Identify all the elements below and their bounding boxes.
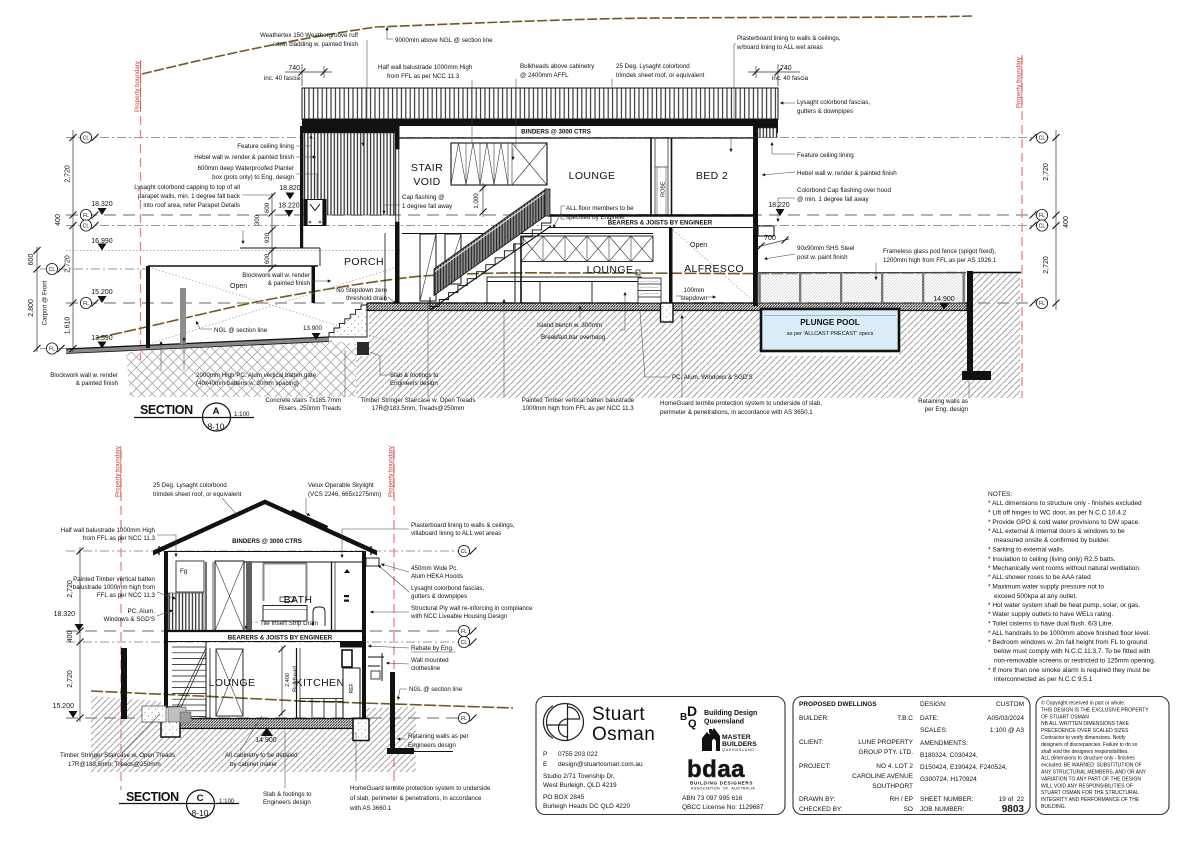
- svg-text:West Burleigh, QLD 4219: West Burleigh, QLD 4219: [543, 782, 617, 789]
- svg-text:STUART OSMAN FOR THE STRUCTURA: STUART OSMAN FOR THE STRUCTURAL: [1041, 790, 1139, 796]
- svg-text:FL: FL: [1039, 301, 1045, 307]
- svg-text:Timber Stringer Staircase w. O: Timber Stringer Staircase w. Open Treads: [60, 752, 175, 759]
- svg-text:AMENDMENTS:: AMENDMENTS:: [920, 740, 968, 747]
- svg-text:Rebate by Eng.: Rebate by Eng.: [411, 645, 454, 652]
- svg-text:Engineers design: Engineers design: [408, 742, 456, 749]
- svg-text:FFL as per NCC 11.3: FFL as per NCC 11.3: [97, 592, 156, 599]
- svg-text:300: 300: [254, 214, 261, 225]
- svg-text:1:100: 1:100: [234, 411, 250, 418]
- svg-text:Lysaght colorbond fascias,: Lysaght colorbond fascias,: [411, 585, 484, 592]
- svg-text:CL: CL: [83, 224, 90, 230]
- svg-text:Plasterboard lining to walls &: Plasterboard lining to walls & ceilings,: [411, 522, 515, 529]
- svg-text:400: 400: [67, 631, 74, 643]
- svg-text:PO BOX 2845: PO BOX 2845: [543, 794, 585, 801]
- svg-text:& painted finish: & painted finish: [76, 380, 119, 387]
- svg-text:2,720: 2,720: [65, 255, 72, 273]
- svg-text:PLUNGE POOL: PLUNGE POOL: [800, 318, 860, 327]
- svg-text:LOUNGE: LOUNGE: [209, 677, 256, 689]
- svg-text:17R@183.5mm, Treads@250mm: 17R@183.5mm, Treads@250mm: [68, 761, 161, 768]
- svg-text:400: 400: [55, 214, 62, 226]
- svg-text:by cabinet maker: by cabinet maker: [230, 761, 277, 768]
- svg-text:0755 203 022: 0755 203 022: [558, 751, 598, 758]
- svg-text:Hebel wall w. render & painted: Hebel wall w. render & painted finish: [797, 170, 897, 177]
- svg-text:9000mm above NGL @ section lin: 9000mm above NGL @ section line: [395, 37, 493, 44]
- svg-text:designers of discrepancies. Fa: designers of discrepancies. Failure to d…: [1041, 742, 1138, 748]
- svg-text:SECTION: SECTION: [140, 403, 193, 417]
- svg-text:BUILDER:: BUILDER:: [799, 715, 829, 722]
- svg-text:sawn cladding w. painted finis: sawn cladding w. painted finish: [273, 41, 359, 48]
- svg-text:1000mm high from FFL as per NC: 1000mm high from FFL as per NCC 11.3: [522, 405, 634, 412]
- svg-text:FL: FL: [83, 213, 89, 219]
- svg-text:FL: FL: [49, 347, 55, 353]
- svg-text:Alum HEKA Hoods: Alum HEKA Hoods: [411, 573, 463, 580]
- svg-text:BUILDERS: BUILDERS: [722, 741, 757, 748]
- svg-text:specified by Engineer: specified by Engineer: [566, 214, 625, 221]
- svg-text:HomeGuard termite protection s: HomeGuard termite protection system to u…: [350, 785, 491, 792]
- svg-text:QBCC License No: 1129687: QBCC License No: 1129687: [682, 804, 764, 811]
- svg-text:excluded. BE WARNED: SUBSTITUT: excluded. BE WARNED: SUBSTITUTION OF: [1041, 763, 1142, 769]
- svg-text:Plasterboard lining to walls &: Plasterboard lining to walls & ceilings,: [737, 35, 841, 42]
- svg-text:25 Deg. Lysaght colorbond: 25 Deg. Lysaght colorbond: [616, 63, 690, 70]
- svg-text:FL: FL: [461, 716, 467, 722]
- svg-text:P: P: [543, 751, 547, 758]
- svg-text:1:100 @ A3: 1:100 @ A3: [990, 727, 1024, 734]
- svg-text:Property boundary: Property boundary: [388, 445, 395, 497]
- svg-text:600: 600: [264, 202, 271, 213]
- svg-text:LOUNGE: LOUNGE: [587, 264, 634, 276]
- svg-text:Blockwork wall w. render: Blockwork wall w. render: [242, 272, 310, 279]
- svg-text:ANY STRUCTURAL MEMBERS, AND OR: ANY STRUCTURAL MEMBERS, AND OR ANY: [1041, 770, 1147, 776]
- svg-text:from FFL as per NCC 11.3: from FFL as per NCC 11.3: [83, 535, 156, 542]
- svg-text:15.200: 15.200: [53, 703, 75, 710]
- svg-text:Hebel wall w. render & painted: Hebel wall w. render & painted finish: [194, 154, 294, 161]
- svg-text:Open: Open: [230, 283, 247, 290]
- svg-text:box (pots only) to Eng. design: box (pots only) to Eng. design: [212, 174, 294, 181]
- svg-text:design@stuartosman.com.au: design@stuartosman.com.au: [558, 761, 643, 768]
- svg-text:CL: CL: [461, 640, 468, 646]
- svg-text:PORCH: PORCH: [344, 256, 384, 268]
- svg-text:Slab & footings to: Slab & footings to: [390, 372, 439, 379]
- svg-text:Q: Q: [688, 718, 697, 730]
- svg-text:REF.: REF.: [349, 683, 355, 694]
- svg-text:Contractor to verify dimension: Contractor to verify dimensions. Notify: [1041, 735, 1126, 741]
- svg-text:NGL @ section line: NGL @ section line: [214, 327, 268, 334]
- svg-text:Feature ceiling lining: Feature ceiling lining: [797, 152, 854, 159]
- svg-text:Tile Insert Strip Drain: Tile Insert Strip Drain: [260, 620, 318, 627]
- svg-text:2,720: 2,720: [1043, 163, 1050, 181]
- svg-text:PRECEDENCE OVER SCALED SIZES: PRECEDENCE OVER SCALED SIZES: [1041, 728, 1129, 734]
- svg-text:NB ALL WRITTEN DIMENSIONS TAKE: NB ALL WRITTEN DIMENSIONS TAKE: [1041, 721, 1130, 727]
- svg-text:INTEGRITY AND PERFORMANCE OF T: INTEGRITY AND PERFORMANCE OF THE: [1041, 797, 1140, 803]
- svg-text:Half wall balustrade 1000mm Hi: Half wall balustrade 1000mm High: [378, 64, 473, 71]
- svg-text:ALFRESCO: ALFRESCO: [684, 263, 744, 275]
- svg-text:BED 2: BED 2: [696, 170, 728, 182]
- svg-text:gutters & downpipes: gutters & downpipes: [797, 108, 853, 115]
- svg-text:13.900: 13.900: [303, 325, 322, 332]
- svg-text:2000mm High PC. Alum vertical: 2000mm High PC. Alum vertical batten gat…: [196, 372, 317, 379]
- svg-text:Carport @ Front: Carport @ Front: [42, 280, 49, 325]
- svg-text:D150424, E190424, F240524,: D150424, E190424, F240524,: [920, 764, 1007, 771]
- svg-text:with NCC Liveable Housing Desi: with NCC Liveable Housing Design: [410, 613, 508, 620]
- svg-text:CL: CL: [49, 267, 56, 273]
- svg-text:Burleigh Heads DC QLD 4220: Burleigh Heads DC QLD 4220: [543, 803, 630, 810]
- svg-text:Wall mounted: Wall mounted: [411, 657, 449, 664]
- svg-text:CHECKED BY:: CHECKED BY:: [799, 806, 843, 813]
- svg-text:CL: CL: [1039, 224, 1046, 230]
- svg-text:HomeGuard termite protection s: HomeGuard termite protection system to u…: [660, 400, 822, 407]
- svg-text:* Maximum water supply pressur: * Maximum water supply pressure not to: [988, 584, 1104, 591]
- svg-text:WILL VOID ANY RESPONSIBILITIES: WILL VOID ANY RESPONSIBILITIES OF: [1041, 783, 1133, 789]
- svg-text:CL: CL: [1039, 136, 1046, 142]
- svg-text:CUSTOM: CUSTOM: [996, 701, 1024, 708]
- svg-text:Open: Open: [690, 242, 707, 249]
- svg-text:BINDERS @ 3000 CTRS: BINDERS @ 3000 CTRS: [232, 538, 302, 545]
- svg-text:with AS 3660.1: with AS 3660.1: [349, 805, 392, 812]
- svg-text:25 Deg. Lysaght colorbond: 25 Deg. Lysaght colorbond: [153, 482, 227, 489]
- svg-text:18.320: 18.320: [91, 201, 113, 208]
- svg-text:CL: CL: [461, 549, 468, 555]
- svg-text:exceed 500kpa at any outlet.: exceed 500kpa at any outlet.: [994, 593, 1077, 600]
- svg-text:Half wall balustrade 1000mm Hi: Half wall balustrade 1000mm High: [61, 527, 156, 534]
- svg-text:740: 740: [288, 65, 300, 72]
- svg-text:600mm deep Waterproofed Plante: 600mm deep Waterproofed Planter: [198, 165, 294, 172]
- svg-text:BUILDING.: BUILDING.: [1041, 804, 1066, 810]
- svg-text:non-removable screens or restr: non-removable screens or restricted to 1…: [994, 658, 1156, 665]
- svg-text:ABN 73 097 995 616: ABN 73 097 995 616: [682, 795, 743, 802]
- svg-text:2,800: 2,800: [28, 299, 35, 317]
- svg-text:as per 'ALLCAST PRECAST' specs: as per 'ALLCAST PRECAST' specs: [787, 331, 874, 337]
- svg-text:Breakfast bar overhang: Breakfast bar overhang: [541, 334, 606, 341]
- svg-text:* Water supply outlets to have: * Water supply outlets to have WELs rati…: [988, 611, 1113, 618]
- svg-text:BINDERS @ 3000 CTRS: BINDERS @ 3000 CTRS: [521, 129, 591, 136]
- svg-text:* ALL dimensions to structure: * ALL dimensions to structure only - fin…: [988, 500, 1142, 507]
- svg-text:GROUP PTY. LTD.: GROUP PTY. LTD.: [858, 749, 913, 756]
- svg-text:G300724, H170924: G300724, H170924: [920, 776, 977, 783]
- svg-text:* ALL shower roses to be AAA r: * ALL shower roses to be AAA rated: [988, 574, 1091, 581]
- svg-text:18.320: 18.320: [54, 611, 76, 618]
- svg-text:Slab & footings to: Slab & footings to: [263, 791, 312, 798]
- svg-text:balustrade 1000mm high from: balustrade 1000mm high from: [73, 584, 155, 591]
- svg-text:E: E: [543, 761, 548, 768]
- svg-text:* Sarking to external walls.: * Sarking to external walls.: [988, 547, 1065, 554]
- svg-text:A: A: [213, 406, 220, 417]
- svg-text:* ALL external & internal door: * ALL external & internal doors & window…: [988, 528, 1125, 535]
- svg-text:OF STUART OSMAN: OF STUART OSMAN: [1041, 714, 1089, 720]
- svg-text:SOUTHPORT: SOUTHPORT: [872, 783, 913, 790]
- svg-text:SHEET NUMBER:: SHEET NUMBER:: [920, 796, 974, 803]
- svg-text:14.900: 14.900: [933, 296, 955, 303]
- svg-text:ALL dimensions to structure on: ALL dimensions to structure only - finis…: [1041, 756, 1135, 762]
- svg-text:No Stepdown zero: No Stepdown zero: [336, 287, 387, 294]
- svg-text:CLIENT:: CLIENT:: [799, 739, 823, 746]
- svg-text:FL: FL: [83, 301, 89, 307]
- svg-text:post w. paint finish: post w. paint finish: [797, 254, 848, 261]
- svg-text:9803: 9803: [1002, 804, 1025, 815]
- svg-text:Painted Timber vertical batten: Painted Timber vertical batten: [73, 576, 155, 583]
- svg-text:* ALL handrails to be 1000mm a: * ALL handrails to be 1000mm above finis…: [988, 630, 1150, 637]
- svg-text:into roof area, refer Parapet: into roof area, refer Parapet Details: [143, 202, 240, 209]
- svg-text:* Lift off hinges to WC door,: * Lift off hinges to WC door, as per N.C…: [988, 510, 1127, 517]
- svg-text:below must comply with N.C.C 1: below must comply with N.C.C 11.3.7. To …: [994, 648, 1151, 655]
- svg-text:of slab, perimeter & penetrati: of slab, perimeter & penetrations, in ac…: [350, 795, 482, 802]
- svg-text:per Eng. design: per Eng. design: [925, 406, 969, 413]
- svg-text:w/board lining to ALL wet area: w/board lining to ALL wet areas: [736, 44, 823, 51]
- svg-text:T.B.C: T.B.C: [897, 715, 913, 722]
- svg-text:18.220: 18.220: [278, 203, 300, 210]
- svg-text:villaboard lining to ALL wet a: villaboard lining to ALL wet areas: [411, 530, 501, 537]
- svg-text:PC. Alum. Windows & SGD'S: PC. Alum. Windows & SGD'S: [672, 374, 753, 381]
- svg-text:450mm Wide Pc.: 450mm Wide Pc.: [411, 565, 458, 572]
- svg-text:PROPOSED DWELLINGS: PROPOSED DWELLINGS: [799, 701, 877, 708]
- svg-text:Colorbond Cap flashing over ho: Colorbond Cap flashing over hood: [797, 187, 891, 194]
- svg-text:Fg: Fg: [180, 568, 188, 575]
- svg-text:All cabinetry to be detailed: All cabinetry to be detailed: [225, 752, 298, 759]
- svg-text:18.820: 18.820: [279, 185, 301, 192]
- svg-text:Engineers design: Engineers design: [263, 799, 311, 806]
- svg-text:clothesline: clothesline: [411, 665, 441, 672]
- svg-text:@ 2400mm AFFL: @ 2400mm AFFL: [520, 72, 569, 79]
- svg-text:trimdek sheet roof, or equival: trimdek sheet roof, or equivalent: [153, 491, 242, 498]
- svg-text:ROBE: ROBE: [661, 181, 667, 197]
- svg-text:from FFL as per NCC 11.3: from FFL as per NCC 11.3: [387, 73, 460, 80]
- svg-text:Osman: Osman: [592, 724, 655, 745]
- svg-text:2,720: 2,720: [67, 670, 74, 688]
- svg-text:CL: CL: [83, 136, 90, 142]
- svg-text:DRAWN BY:: DRAWN BY:: [799, 796, 835, 803]
- svg-text:1 degree fall away: 1 degree fall away: [402, 203, 453, 210]
- svg-text:inc. 40 fascia: inc. 40 fascia: [772, 75, 809, 82]
- svg-text:NOTES:: NOTES:: [988, 491, 1012, 498]
- svg-text:NO 4. LOT 2: NO 4. LOT 2: [876, 763, 913, 770]
- svg-text:Stuart: Stuart: [592, 704, 645, 725]
- svg-text:Concrete stairs 7x185.7mm: Concrete stairs 7x185.7mm: [265, 397, 341, 404]
- svg-text:© Copyright reserved in part o: © Copyright reserved in part or whole.: [1041, 700, 1125, 707]
- svg-text:14.900: 14.900: [255, 737, 277, 744]
- svg-text:Painted Timber vertical batten: Painted Timber vertical batten balustrad…: [522, 397, 635, 404]
- svg-text:Lysaght colorbond fascias,: Lysaght colorbond fascias,: [797, 99, 870, 106]
- svg-text:@ min. 1 degree fall away: @ min. 1 degree fall away: [797, 196, 870, 203]
- svg-text:ASSOCIATION OF AUSTRALIA: ASSOCIATION OF AUSTRALIA: [691, 787, 755, 791]
- svg-text:THIS DESIGN IS THE EXCLUSIVE P: THIS DESIGN IS THE EXCLUSIVE PROPERTY: [1041, 707, 1149, 713]
- svg-text:(40x40mm battens w. 30mm spaci: (40x40mm battens w. 30mm spacing): [196, 380, 299, 387]
- svg-text:1,000: 1,000: [473, 193, 480, 209]
- svg-text:Windows & SGD'S: Windows & SGD'S: [104, 616, 155, 623]
- svg-text:* Provide GPO & cold water pro: * Provide GPO & cold water provisions to…: [988, 519, 1140, 526]
- svg-text:SECTION: SECTION: [126, 790, 179, 804]
- svg-text:inc. 40 fascia: inc. 40 fascia: [264, 75, 301, 82]
- svg-text:600: 600: [264, 253, 271, 264]
- svg-text:Weathertex 150 Weathergroove r: Weathertex 150 Weathergroove ruff: [260, 32, 358, 39]
- svg-text:D: D: [687, 703, 697, 719]
- svg-text:13.590: 13.590: [91, 335, 113, 342]
- svg-text:Property boundary: Property boundary: [134, 60, 141, 112]
- svg-text:FL: FL: [1039, 213, 1045, 219]
- svg-text:* Mechanically vent rooms with: * Mechanically vent rooms without natura…: [988, 565, 1141, 572]
- svg-text:BATH: BATH: [284, 594, 313, 606]
- svg-text:Engineers design: Engineers design: [390, 380, 438, 387]
- svg-text:measured onsite & confirmed by: measured onsite & confirmed by builder.: [994, 537, 1110, 544]
- svg-text:Risers, 250mm Treads: Risers, 250mm Treads: [279, 405, 341, 412]
- svg-text:2,720: 2,720: [65, 165, 72, 183]
- svg-text:Queensland: Queensland: [704, 719, 744, 726]
- svg-text:1:100: 1:100: [219, 798, 235, 805]
- svg-text:BEARERS & JOISTS BY ENGINEER: BEARERS & JOISTS BY ENGINEER: [228, 635, 333, 642]
- svg-text:Cap flashing @: Cap flashing @: [402, 194, 444, 201]
- svg-text:740: 740: [780, 65, 792, 72]
- svg-text:trimdek sheet roof, or equival: trimdek sheet roof, or equivalent: [616, 72, 705, 79]
- svg-text:CAROLINE AVENUE: CAROLINE AVENUE: [852, 773, 914, 780]
- svg-text:400: 400: [1063, 216, 1070, 228]
- svg-text:bdaa: bdaa: [687, 756, 745, 783]
- svg-text:PROJECT:: PROJECT:: [799, 763, 831, 770]
- svg-text:Retaining walls as per: Retaining walls as per: [408, 733, 469, 740]
- svg-text:8-10: 8-10: [191, 808, 208, 818]
- svg-text:Blockwork wall w. render: Blockwork wall w. render: [50, 372, 118, 379]
- svg-text:SO: SO: [904, 806, 913, 813]
- svg-text:2,720: 2,720: [1043, 256, 1050, 274]
- svg-text:interconnected as per N.C.C 9.: interconnected as per N.C.C 9.5.1: [994, 676, 1093, 683]
- svg-text:Timber Stringer Staircase w. O: Timber Stringer Staircase w. Open Treads: [361, 397, 476, 404]
- svg-text:100mm: 100mm: [684, 287, 705, 294]
- svg-text:Lysaght colorbond capping to t: Lysaght colorbond capping to top of all: [134, 184, 240, 191]
- svg-text:1,610: 1,610: [65, 317, 72, 335]
- svg-text:Studio 2/71 Township Dr,: Studio 2/71 Township Dr,: [543, 773, 615, 780]
- svg-text:* Bedroom windows w. 2m fall h: * Bedroom windows w. 2m fall height from…: [988, 639, 1147, 646]
- svg-text:STAIR: STAIR: [411, 162, 443, 174]
- svg-text:DESIGN:: DESIGN:: [920, 701, 947, 708]
- svg-text:17R@183.5mm, Treads@250mm: 17R@183.5mm, Treads@250mm: [372, 405, 465, 412]
- svg-text:A05/03/2024: A05/03/2024: [987, 715, 1024, 722]
- svg-text:parapet walls, min. 1 degree f: parapet walls, min. 1 degree fall back: [138, 193, 241, 200]
- svg-text:Frameless glass pod fence (spi: Frameless glass pod fence (spigot fixed)…: [883, 248, 996, 255]
- svg-text:BUILDING DESIGNERS: BUILDING DESIGNERS: [690, 781, 753, 786]
- svg-text:Retaining walls as: Retaining walls as: [918, 398, 968, 405]
- svg-text:MASTER: MASTER: [722, 734, 751, 741]
- svg-text:2,400: 2,400: [285, 673, 291, 687]
- svg-text:Velux Operable Skylight: Velux Operable Skylight: [308, 482, 374, 489]
- svg-text:90x90mm SHS Steel: 90x90mm SHS Steel: [797, 245, 854, 252]
- svg-text:Property boundary: Property boundary: [115, 445, 122, 497]
- svg-text:FL: FL: [461, 629, 467, 635]
- svg-text:Feature ceiling lining: Feature ceiling lining: [237, 143, 294, 150]
- svg-text:Structural Ply wall re-inforci: Structural Ply wall re-inforcing in comp…: [411, 605, 533, 612]
- svg-text:QUEENSLAND: QUEENSLAND: [722, 748, 755, 752]
- svg-text:C: C: [197, 793, 204, 804]
- svg-text:RH / EP: RH / EP: [890, 796, 913, 803]
- svg-text:15.200: 15.200: [91, 289, 113, 296]
- svg-text:19 of 22: 19 of 22: [999, 796, 1025, 803]
- svg-text:600: 600: [28, 254, 35, 266]
- svg-text:SCALES:: SCALES:: [920, 727, 948, 734]
- svg-text:1200mm high from FFL as per AS: 1200mm high from FFL as per AS 1926.1: [883, 257, 997, 264]
- svg-text:JOB NUMBER:: JOB NUMBER:: [920, 806, 965, 813]
- svg-text:* Toilet cisterns to have dual: * Toilet cisterns to have dual flush. 6/…: [988, 621, 1113, 628]
- svg-text:700: 700: [764, 235, 776, 242]
- svg-text:* Hot water system shall be he: * Hot water system shall be heat pump, s…: [988, 602, 1140, 609]
- svg-text:ALL floor members to be: ALL floor members to be: [566, 205, 634, 212]
- svg-text:stepdown: stepdown: [681, 295, 708, 302]
- svg-text:threshold drain: threshold drain: [346, 295, 387, 302]
- svg-text:& painted finish: & painted finish: [268, 280, 311, 287]
- svg-text:shall void the designers respo: shall void the designers responsibilitie…: [1041, 749, 1129, 755]
- svg-text:Island bench w. 300mm: Island bench w. 300mm: [537, 322, 602, 329]
- svg-text:Bulkheads above cabinetry: Bulkheads above cabinetry: [520, 63, 595, 70]
- svg-text:8-10: 8-10: [207, 422, 224, 432]
- svg-text:* Insulation to ceiling (livin: * Insulation to ceiling (living only) R2…: [988, 556, 1116, 563]
- svg-text:DATE:: DATE:: [920, 715, 939, 722]
- svg-text:Building Design: Building Design: [704, 710, 757, 717]
- svg-text:PC. Alum.: PC. Alum.: [127, 608, 155, 615]
- svg-text:LUNE PROPERTY: LUNE PROPERTY: [858, 739, 913, 746]
- svg-text:perimeter & penetrations, in a: perimeter & penetrations, in accordance …: [660, 409, 813, 416]
- svg-text:18.220: 18.220: [768, 202, 790, 209]
- svg-text:LOUNGE: LOUNGE: [569, 170, 616, 182]
- svg-text:Property boundary: Property boundary: [1016, 56, 1023, 108]
- svg-text:VARIATION TO ANY PART OF THE D: VARIATION TO ANY PART OF THE DESIGN: [1041, 776, 1141, 782]
- svg-text:* If more than one smoke alarm: * If more than one smoke alarm is requir…: [988, 667, 1150, 674]
- svg-text:(VCS 2246, 665x1275mm): (VCS 2246, 665x1275mm): [308, 491, 381, 498]
- svg-text:gutters & downpipes: gutters & downpipes: [411, 593, 467, 600]
- svg-text:KITCHEN: KITCHEN: [296, 677, 345, 689]
- svg-text:930: 930: [264, 232, 271, 243]
- svg-text:VOID: VOID: [413, 176, 440, 188]
- svg-text:B180324, C030424,: B180324, C030424,: [920, 752, 978, 759]
- svg-text:NGL @ section line: NGL @ section line: [409, 686, 463, 693]
